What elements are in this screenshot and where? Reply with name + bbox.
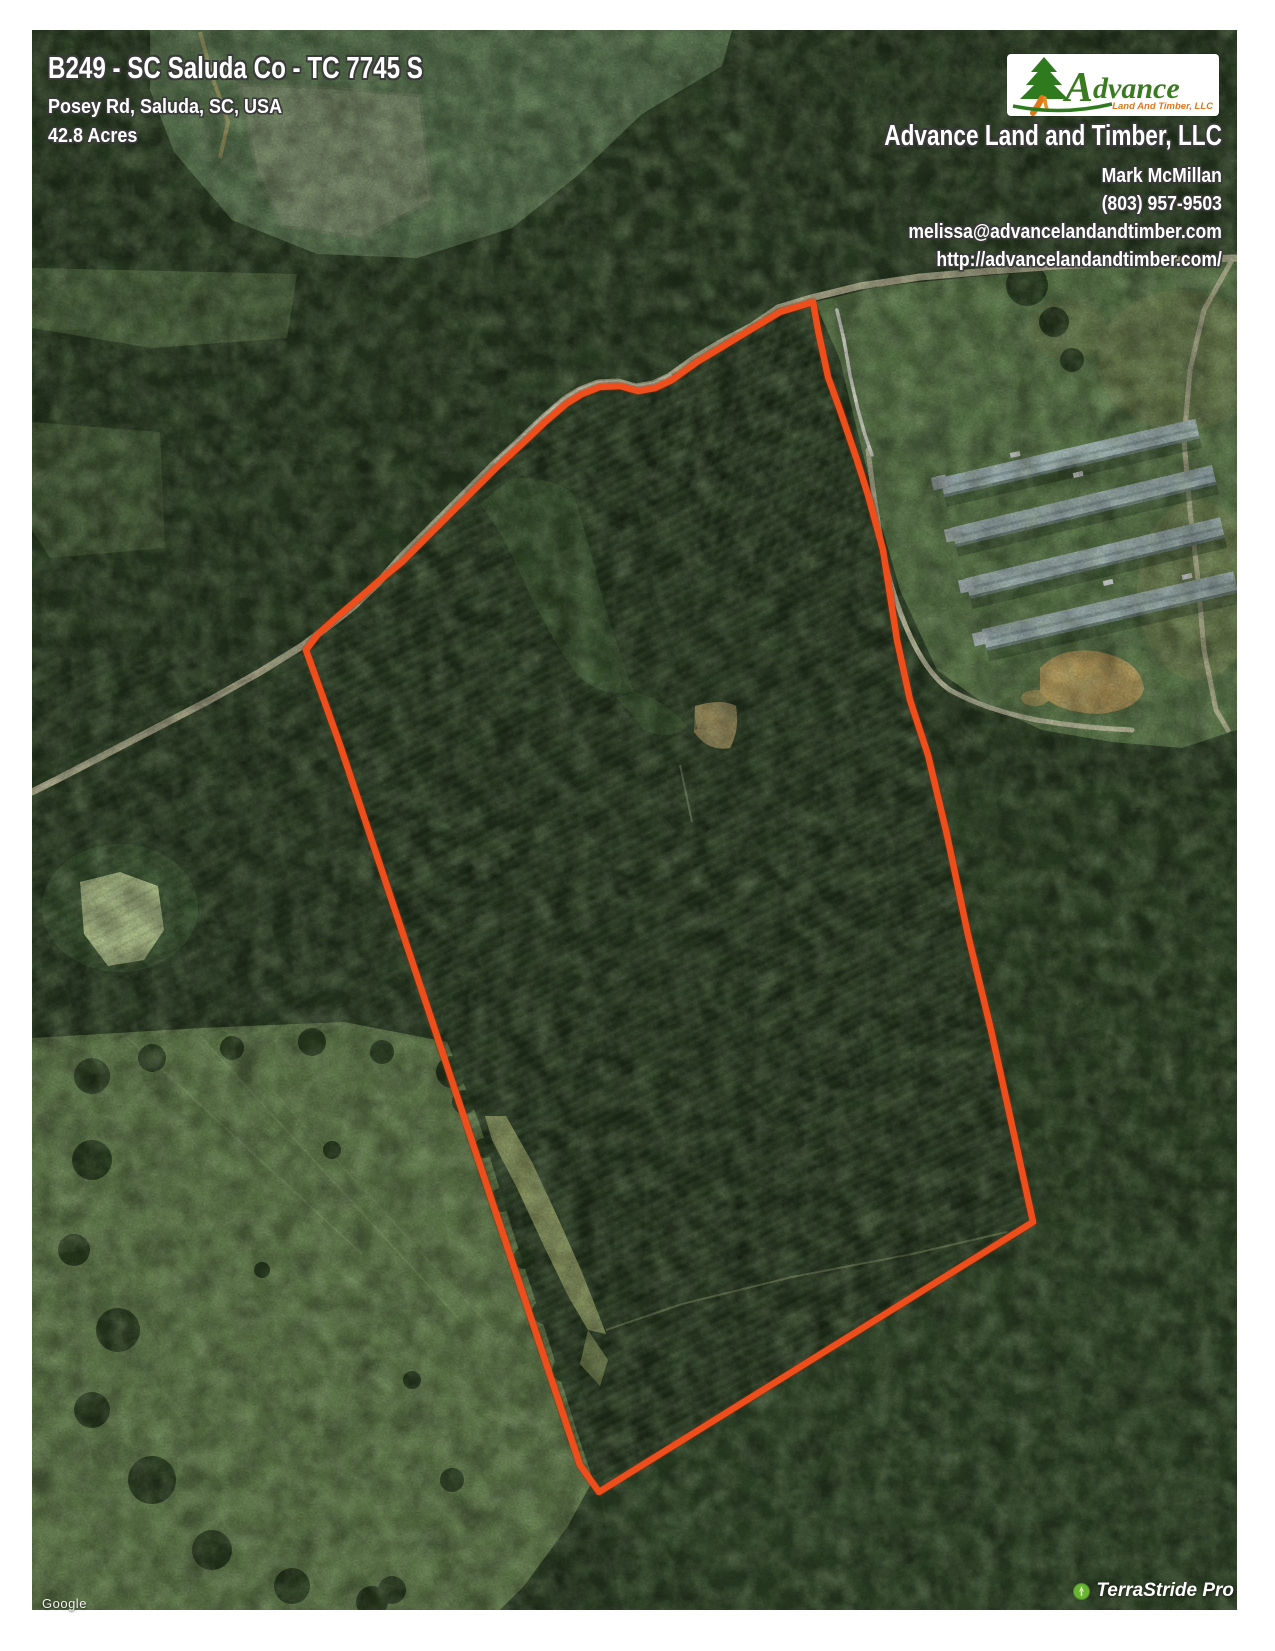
logo-tagline: Land And Timber, LLC bbox=[1112, 101, 1213, 112]
agent-email: melissa@advancelandandtimber.com bbox=[841, 218, 1222, 246]
property-acreage: 42.8 Acres bbox=[48, 125, 481, 148]
property-address: Posey Rd, Saluda, SC, USA bbox=[48, 96, 481, 119]
contact-block: Advance Land and Timber, LLC Mark McMill… bbox=[789, 120, 1222, 274]
company-name: Advance Land and Timber, LLC bbox=[884, 120, 1222, 153]
pine-tree-icon bbox=[1020, 57, 1068, 113]
property-title-block: B249 - SC Saluda Co - TC 7745 S Posey Rd… bbox=[48, 50, 529, 148]
listing-map-page: B249 - SC Saluda Co - TC 7745 S Posey Rd… bbox=[0, 0, 1275, 1651]
imagery-credit: Google bbox=[42, 1596, 87, 1611]
terrastride-icon bbox=[1073, 1583, 1090, 1600]
agent-phone: (803) 957-9503 bbox=[841, 190, 1222, 218]
company-logo: A dvance Land And Timber, LLC bbox=[1007, 54, 1219, 116]
company-logo-graphic: A dvance Land And Timber, LLC bbox=[1007, 54, 1219, 116]
company-website: http://advancelandandtimber.com/ bbox=[841, 246, 1222, 274]
terrastride-label: TerraStride Pro bbox=[1096, 1580, 1234, 1602]
terrastride-badge: TerraStride Pro bbox=[1073, 1580, 1234, 1602]
property-title: B249 - SC Saluda Co - TC 7745 S bbox=[48, 50, 423, 86]
agent-name: Mark McMillan bbox=[841, 162, 1222, 190]
logo-word-initial: A bbox=[1062, 65, 1093, 111]
